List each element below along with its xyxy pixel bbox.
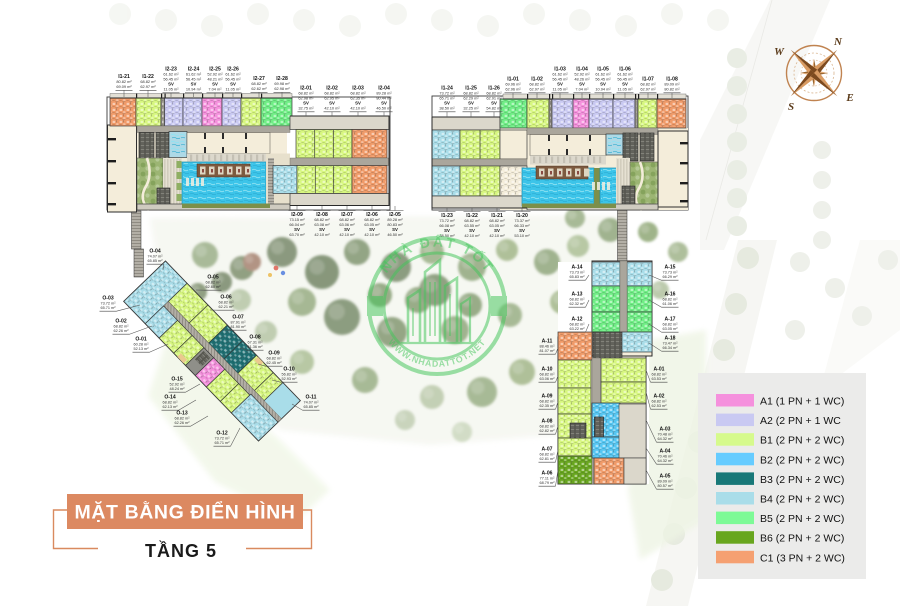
svg-text:74.07 m²: 74.07 m²: [148, 254, 164, 258]
svg-text:C1 (3 PN + 2 WC): C1 (3 PN + 2 WC): [760, 552, 845, 564]
svg-text:68.82 m²: 68.82 m²: [267, 356, 283, 360]
svg-text:63.22 m²: 63.22 m²: [570, 327, 586, 331]
svg-text:68.82 m²: 68.82 m²: [540, 452, 556, 456]
svg-text:42.10 m²: 42.10 m²: [489, 233, 505, 238]
svg-text:74.07 m²: 74.07 m²: [304, 400, 320, 404]
svg-text:62.98 m²: 62.98 m²: [274, 86, 290, 91]
svg-text:38.50 m²: 38.50 m²: [439, 106, 455, 111]
svg-text:11.05 m²: 11.05 m²: [552, 87, 568, 92]
svg-text:62.60 m²: 62.60 m²: [206, 285, 222, 289]
svg-text:68.82 m²: 68.82 m²: [163, 400, 179, 404]
svg-text:63.53 m²: 63.53 m²: [652, 377, 668, 381]
svg-text:62.26 m²: 62.26 m²: [114, 329, 130, 333]
svg-text:52.92 m²: 52.92 m²: [170, 382, 186, 386]
svg-text:68.82 m²: 68.82 m²: [540, 372, 556, 376]
svg-text:65.71 m²: 65.71 m²: [101, 306, 117, 310]
svg-text:68.82 m²: 68.82 m²: [652, 399, 668, 403]
svg-text:62.26 m²: 62.26 m²: [175, 421, 191, 425]
svg-text:62.13 m²: 62.13 m²: [163, 405, 179, 409]
svg-text:42.10 m²: 42.10 m²: [464, 233, 480, 238]
svg-text:61.36 m²: 61.36 m²: [248, 345, 264, 349]
svg-text:69.09 m²: 69.09 m²: [116, 84, 132, 89]
svg-text:10.94 m²: 10.94 m²: [595, 87, 611, 92]
svg-text:87.91 m²: 87.91 m²: [231, 320, 247, 324]
svg-text:B2 (2 PN + 2 WC): B2 (2 PN + 2 WC): [760, 454, 844, 466]
svg-text:TẦNG 5: TẦNG 5: [145, 540, 217, 561]
svg-text:62.82 m²: 62.82 m²: [540, 429, 556, 433]
svg-text:68.82 m²: 68.82 m²: [219, 300, 235, 304]
svg-text:68.82 m²: 68.82 m²: [175, 416, 191, 420]
svg-text:60.28 m²: 60.28 m²: [134, 342, 150, 346]
svg-text:B5 (2 PN + 2 WC): B5 (2 PN + 2 WC): [760, 513, 844, 525]
svg-text:61.06 m²: 61.06 m²: [663, 302, 679, 306]
svg-text:62.35 m²: 62.35 m²: [540, 404, 556, 408]
svg-text:62.45 m²: 62.45 m²: [267, 361, 283, 365]
svg-text:B1 (2 PN + 2 WC): B1 (2 PN + 2 WC): [760, 435, 844, 447]
svg-text:66.29 m²: 66.29 m²: [663, 275, 679, 279]
svg-text:64.32 m²: 64.32 m²: [658, 437, 674, 441]
svg-text:80.82 m²: 80.82 m²: [664, 87, 680, 92]
svg-text:7.04 m²: 7.04 m²: [208, 87, 222, 92]
svg-text:52.93 m²: 52.93 m²: [282, 377, 298, 381]
svg-text:77.11 m²: 77.11 m²: [540, 476, 555, 480]
svg-text:42.10 m²: 42.10 m²: [339, 232, 355, 237]
svg-text:11.05 m²: 11.05 m²: [225, 87, 241, 92]
svg-text:68.79 m²: 68.79 m²: [540, 481, 556, 485]
svg-text:42.10 m²: 42.10 m²: [350, 106, 366, 111]
svg-text:62.32 m²: 62.32 m²: [570, 302, 586, 306]
svg-text:N: N: [833, 36, 843, 48]
svg-text:65.71 m²: 65.71 m²: [215, 441, 231, 445]
svg-text:68.82 m²: 68.82 m²: [652, 372, 668, 376]
svg-text:B4 (2 PN + 2 WC): B4 (2 PN + 2 WC): [760, 494, 844, 506]
svg-text:62.97 m²: 62.97 m²: [140, 84, 156, 89]
svg-text:63.05 m²: 63.05 m²: [663, 327, 679, 331]
svg-text:68.82 m²: 68.82 m²: [114, 324, 130, 328]
svg-text:73.73 m²: 73.73 m²: [570, 270, 586, 274]
svg-text:68.82 m²: 68.82 m²: [663, 297, 679, 301]
svg-text:S: S: [788, 101, 794, 113]
svg-text:63.06 m²: 63.06 m²: [540, 377, 556, 381]
svg-text:53.10 m²: 53.10 m²: [514, 233, 530, 238]
svg-text:62.96 m²: 62.96 m²: [505, 87, 521, 92]
svg-text:52.13 m²: 52.13 m²: [134, 347, 150, 351]
svg-text:11.05 m²: 11.05 m²: [163, 87, 179, 92]
svg-text:62.62 m²: 62.62 m²: [251, 86, 267, 91]
svg-text:68.82 m²: 68.82 m²: [663, 322, 679, 326]
svg-text:42.10 m²: 42.10 m²: [314, 232, 330, 237]
svg-text:MẶT BẰNG ĐIỂN HÌNH: MẶT BẰNG ĐIỂN HÌNH: [75, 500, 296, 524]
svg-text:68.82 m²: 68.82 m²: [540, 399, 556, 403]
svg-text:7.04 m²: 7.04 m²: [575, 87, 589, 92]
svg-text:65.85 m²: 65.85 m²: [304, 405, 320, 409]
svg-text:46.50 m²: 46.50 m²: [387, 232, 403, 237]
svg-text:42.10 m²: 42.10 m²: [364, 232, 380, 237]
svg-text:81.07 m²: 81.07 m²: [540, 349, 556, 353]
svg-text:65.83 m²: 65.83 m²: [570, 275, 586, 279]
svg-text:62.21 m²: 62.21 m²: [219, 305, 235, 309]
svg-text:54.82 m²: 54.82 m²: [486, 106, 502, 111]
svg-text:81.90 m²: 81.90 m²: [231, 325, 247, 329]
svg-text:32.25 m²: 32.25 m²: [463, 106, 479, 111]
svg-text:73.73 m²: 73.73 m²: [663, 270, 679, 274]
svg-text:62.53 m²: 62.53 m²: [652, 404, 668, 408]
svg-text:W: W: [774, 46, 785, 58]
svg-text:E: E: [845, 92, 853, 104]
svg-text:73.47 m²: 73.47 m²: [663, 341, 679, 345]
svg-text:70.46 m²: 70.46 m²: [658, 454, 674, 458]
svg-text:32.75 m²: 32.75 m²: [298, 106, 314, 111]
svg-text:68.82 m²: 68.82 m²: [540, 424, 556, 428]
svg-text:63.70 m²: 63.70 m²: [289, 232, 305, 237]
svg-text:68.82 m²: 68.82 m²: [570, 297, 586, 301]
svg-text:42.10 m²: 42.10 m²: [324, 106, 340, 111]
svg-text:62.81 m²: 62.81 m²: [540, 457, 556, 461]
svg-text:67.31 m²: 67.31 m²: [248, 340, 264, 344]
svg-text:89.09 m²: 89.09 m²: [658, 479, 674, 483]
svg-text:B3 (2 PN + 2 WC): B3 (2 PN + 2 WC): [760, 474, 844, 486]
svg-text:73.72 m²: 73.72 m²: [215, 436, 231, 440]
svg-text:10.94 m²: 10.94 m²: [186, 87, 202, 92]
svg-text:A2 (2 PN + 1 WC: A2 (2 PN + 1 WC: [760, 415, 841, 427]
svg-text:56.82 m²: 56.82 m²: [282, 372, 298, 376]
svg-text:70.48 m²: 70.48 m²: [658, 432, 674, 436]
svg-text:66.34 m²: 66.34 m²: [663, 346, 679, 350]
svg-text:80.57 m²: 80.57 m²: [658, 484, 674, 488]
svg-text:68.82 m²: 68.82 m²: [206, 280, 222, 284]
svg-text:62.97 m²: 62.97 m²: [529, 87, 545, 92]
svg-text:73.72 m²: 73.72 m²: [101, 301, 117, 305]
svg-text:88.46 m²: 88.46 m²: [540, 344, 556, 348]
svg-text:65.85 m²: 65.85 m²: [148, 259, 164, 263]
svg-text:A1 (1 PN + 1 WC): A1 (1 PN + 1 WC): [760, 396, 844, 408]
svg-text:48.24 m²: 48.24 m²: [170, 387, 186, 391]
svg-text:11.05 m²: 11.05 m²: [617, 87, 633, 92]
svg-text:B6 (2 PN + 2 WC): B6 (2 PN + 2 WC): [760, 533, 844, 545]
svg-text:62.97 m²: 62.97 m²: [640, 87, 656, 92]
svg-text:64.32 m²: 64.32 m²: [658, 459, 674, 463]
svg-text:46.50 m²: 46.50 m²: [376, 106, 392, 111]
svg-text:68.82 m²: 68.82 m²: [570, 322, 586, 326]
